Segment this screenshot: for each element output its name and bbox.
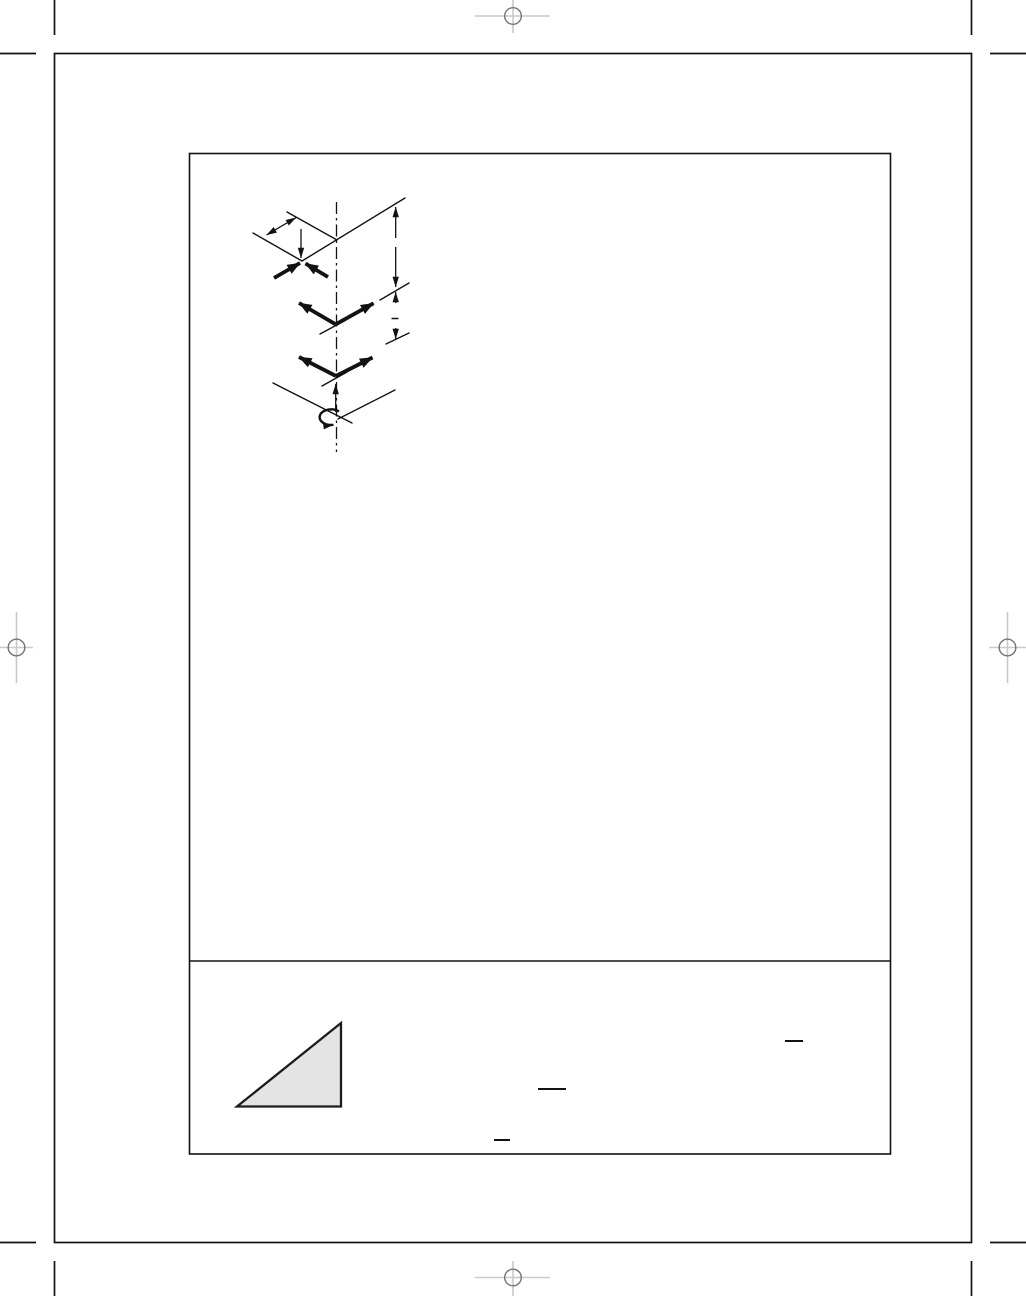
registration-circles	[8, 8, 1016, 1286]
extension-line-middle-right	[380, 283, 409, 300]
reference-line-offset	[253, 233, 302, 261]
footnote-text-blanks	[494, 1041, 803, 1140]
isometric-diagram	[253, 198, 409, 452]
figure-border	[190, 154, 891, 1155]
bold-arrow-middle-right	[336, 303, 374, 324]
document-page	[0, 0, 1026, 1296]
footnote-area	[237, 1023, 803, 1140]
shaded-triangle-icon	[237, 1023, 341, 1107]
bold-arrow-lower-right	[336, 358, 373, 377]
figure-panel	[190, 154, 891, 1155]
page-trim-border	[55, 54, 972, 1243]
crop-marks	[0, 0, 1026, 1296]
offset-dimension-arrow	[267, 218, 297, 235]
bold-arrow-middle-left	[299, 303, 336, 324]
bold-arrow-junction-left	[274, 263, 300, 278]
bold-arrow-junction-right	[306, 264, 329, 278]
registration-crosshairs	[0, 0, 1026, 1296]
base-line-left	[273, 383, 352, 423]
extension-line-lower-right	[386, 333, 409, 344]
page-artwork	[0, 0, 1026, 1296]
base-line-right	[338, 390, 395, 419]
bold-arrow-lower-left	[299, 357, 336, 376]
reference-line-top-left	[287, 212, 337, 240]
